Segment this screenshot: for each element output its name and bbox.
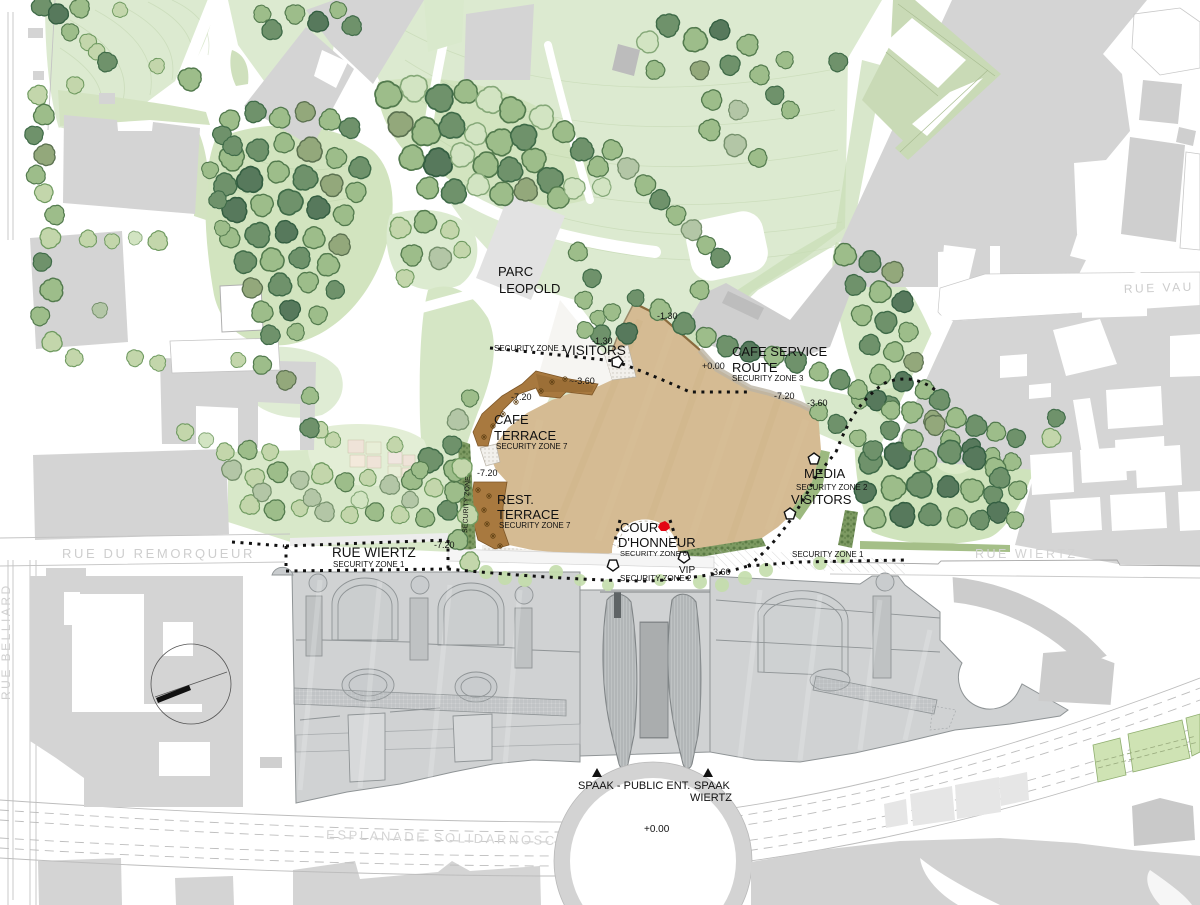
svg-text:PARC: PARC [498,264,533,279]
svg-text:SPAAK - PUBLIC ENT.: SPAAK - PUBLIC ENT. [578,780,690,792]
svg-text:-7.20: -7.20 [511,392,532,402]
svg-text:-7.20: -7.20 [434,540,455,550]
svg-text:-3.60: -3.60 [807,398,828,408]
svg-text:-3.60: -3.60 [710,567,731,577]
svg-text:SECURITY ZONE 1: SECURITY ZONE 1 [333,560,405,569]
svg-text:-1.30: -1.30 [657,311,678,321]
svg-text:SECURITY ZONE 7: SECURITY ZONE 7 [496,442,568,451]
svg-text:-7.20: -7.20 [477,468,498,478]
svg-text:SECURITY ZONE 1: SECURITY ZONE 1 [792,550,864,559]
svg-text:RUE BELLIARD: RUE BELLIARD [0,583,13,700]
svg-text:MEDIA: MEDIA [804,466,846,481]
svg-text:SECURITY ZONE 7: SECURITY ZONE 7 [499,521,571,530]
svg-text:SECURITY ZONE 6: SECURITY ZONE 6 [620,549,687,558]
svg-text:VISITORS: VISITORS [791,492,852,507]
svg-text:D'HONNEUR: D'HONNEUR [618,535,696,550]
svg-text:WIERTZ: WIERTZ [690,792,732,804]
svg-text:COUR: COUR [620,520,658,535]
svg-text:RUE VAU: RUE VAU [1124,280,1194,296]
svg-text:LEOPOLD: LEOPOLD [499,281,560,296]
svg-text:SPAAK: SPAAK [694,780,731,792]
svg-text:SECURITY ZONE 2: SECURITY ZONE 2 [620,574,692,583]
svg-text:RUE DU REMORQUEUR: RUE DU REMORQUEUR [62,546,255,561]
svg-text:CAFE: CAFE [494,412,529,427]
svg-text:ROUTE: ROUTE [732,360,778,375]
svg-text:SECURITY ZONE 2: SECURITY ZONE 2 [796,483,868,492]
svg-text:CAFE SERVICE: CAFE SERVICE [732,344,827,359]
svg-text:TERRACE: TERRACE [497,507,559,522]
svg-text:SECURITY ZONE 3: SECURITY ZONE 3 [732,374,804,383]
svg-text:REST.: REST. [497,492,534,507]
svg-text:RUE WIERTZ: RUE WIERTZ [332,545,416,560]
svg-text:+0.00: +0.00 [702,361,725,371]
svg-text:-7.20: -7.20 [774,391,795,401]
svg-text:TERRACE: TERRACE [494,428,556,443]
svg-text:-1.30: -1.30 [592,336,613,346]
svg-text:SECURITY ZONE 1: SECURITY ZONE 1 [494,344,566,353]
svg-text:RUE WIERTZ: RUE WIERTZ [975,547,1078,561]
svg-text:~-3.60: ~-3.60 [569,376,595,386]
svg-text:+0.00: +0.00 [644,824,670,835]
